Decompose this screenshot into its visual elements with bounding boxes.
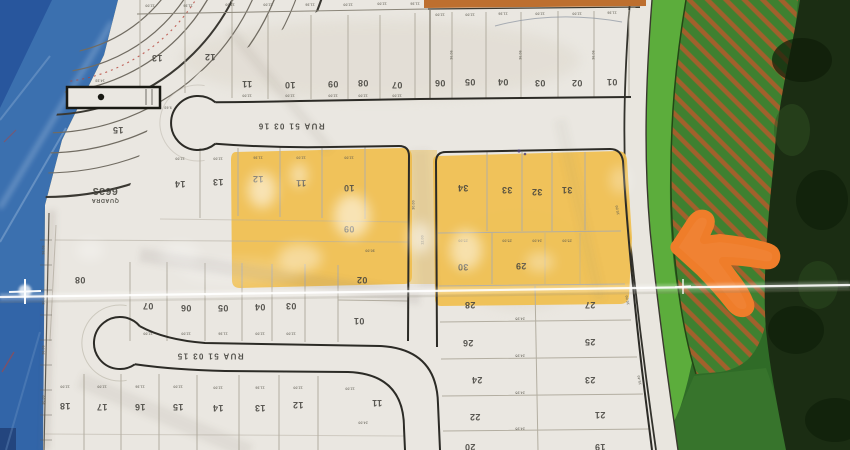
street-name-rua-51-03-15: RUA 51 03 15 <box>176 352 243 361</box>
dimension-label: 12.00 <box>242 93 252 97</box>
lot-number-label: 32 <box>532 187 543 197</box>
lot-number-label: 06 <box>435 78 446 88</box>
dimension-label: 24.00 <box>532 238 542 242</box>
lot-number-label: 23 <box>585 375 596 385</box>
dimension-label: 12.00 <box>392 93 402 97</box>
dimension-label: 12.00 <box>296 155 306 159</box>
dimension-label: 12.00 <box>285 93 295 97</box>
lot-number-label: 08 <box>75 275 86 285</box>
map-labels: RUA 51 03 16 RUA 51 03 15 QUADRA 6633 13… <box>0 0 850 450</box>
dimension-label: 10.00 <box>625 295 630 305</box>
dimension-label: 24.95 <box>515 426 525 430</box>
lot-number-label: 14 <box>213 403 224 413</box>
dimension-label: 30.00 <box>365 248 375 252</box>
lot-number-label: 30 <box>458 262 469 272</box>
lot-number-label: 09 <box>328 79 339 89</box>
lot-number-label: 33 <box>502 185 513 195</box>
lot-number-label: 04 <box>255 302 266 312</box>
dimension-label: 24.95 <box>515 353 525 357</box>
dimension-label: 12.00 <box>263 2 273 6</box>
lot-number-label: 06 <box>181 303 192 313</box>
lot-number-label: 05 <box>218 303 229 313</box>
quadra-title: QUADRA <box>91 197 119 203</box>
dimension-label: 12.00 <box>572 11 582 15</box>
lot-number-label: 26 <box>463 338 474 348</box>
dimension-label: 12.00 <box>175 156 185 160</box>
map-photo: RUA 51 03 16 RUA 51 03 15 QUADRA 6633 13… <box>0 0 850 450</box>
dimension-label: 12.00 <box>535 11 545 15</box>
dimension-label: 24.95 <box>515 316 525 320</box>
dimension-label: 11.36 <box>607 10 616 14</box>
lot-number-label: 25 <box>585 337 596 347</box>
lot-number-label: 10 <box>285 80 296 90</box>
dimension-label: 12.00 <box>421 235 425 245</box>
lot-number-label: 19 <box>595 442 606 450</box>
dimension-label: 25.00 <box>562 238 572 242</box>
dimension-label: 12.00 <box>225 2 235 6</box>
dimension-label: 12.00 <box>143 331 153 335</box>
quadra-number: 6633 <box>92 185 117 197</box>
dimension-label: 11.36 <box>305 2 314 6</box>
dimension-label: 9.63 <box>164 105 171 109</box>
lot-number-label: 17 <box>97 402 108 412</box>
lot-number-label: 08 <box>358 78 369 88</box>
dimension-label: 12.00 <box>213 156 223 160</box>
dimension-label: 12.00 <box>345 386 355 390</box>
dimension-label: 12.00 <box>358 93 368 97</box>
lot-number-label: 16 <box>135 402 146 412</box>
lot-number-label: 24 <box>472 375 483 385</box>
dimension-label: 12.00 <box>344 155 354 159</box>
dimension-label: 12.00 <box>145 3 155 7</box>
lot-number-label: 11 <box>372 398 382 408</box>
lot-number-label: 13 <box>255 403 266 413</box>
lot-number-label: 18 <box>60 401 71 411</box>
dimension-label: 12.00 <box>286 331 296 335</box>
dimension-label: 36.06 <box>450 50 454 60</box>
dimension-label: 12.00 <box>343 2 353 6</box>
lot-number-label: 02 <box>572 78 583 88</box>
dimension-label: 12.00 <box>328 93 338 97</box>
quadra-label: QUADRA 6633 <box>91 185 119 203</box>
lot-number-label: 21 <box>595 410 606 420</box>
dimension-label: 12.00 <box>255 331 265 335</box>
lot-number-label: 03 <box>286 301 297 311</box>
lot-number-label: 22 <box>470 412 481 422</box>
lot-number-label: 11 <box>296 178 306 188</box>
lot-number-label: 02 <box>357 275 368 285</box>
dimension-label: 12.00 <box>97 384 107 388</box>
lot-number-label: 11 <box>242 79 252 89</box>
dimension-label: 15.40 <box>637 375 642 385</box>
lot-number-label: 13 <box>152 53 163 63</box>
dimension-label: 12.00 <box>181 331 191 335</box>
dimension-label: 30.00 <box>42 295 46 305</box>
dimension-label: 10.00 <box>615 205 620 215</box>
street-name-rua-51-03-16: RUA 51 03 16 <box>257 122 324 131</box>
lot-number-label: 07 <box>143 301 154 311</box>
dimension-label: 25.00 <box>502 238 512 242</box>
dimension-label: 11.36 <box>498 11 507 15</box>
dimension-label: 12.00 <box>377 1 387 5</box>
lot-number-label: 12 <box>253 174 264 184</box>
lot-number-label: 12 <box>205 52 216 62</box>
dimension-label: 11.36 <box>255 385 264 389</box>
lot-number-label: 04 <box>498 77 509 87</box>
dimension-label: 12.00 <box>60 384 70 388</box>
lot-number-label: 09 <box>344 224 355 234</box>
lot-number-label: 03 <box>535 78 546 88</box>
dimension-label: 11.36 <box>135 384 144 388</box>
dimension-label: 12.00 <box>465 12 475 16</box>
dimension-label: 36.06 <box>42 245 46 255</box>
dimension-label: 12.00 <box>213 385 223 389</box>
lot-number-label: 28 <box>465 300 476 310</box>
dimension-label: 11.36 <box>183 3 192 7</box>
lot-number-label: 12 <box>293 400 304 410</box>
lot-number-label: 01 <box>354 316 365 326</box>
dimension-label: 12.00 <box>435 12 445 16</box>
dimension-label: 11.36 <box>410 1 419 5</box>
lot-number-label: 13 <box>213 177 224 187</box>
dimension-label: 25.00 <box>458 238 468 242</box>
dimension-label: 30.00 <box>42 395 46 405</box>
dimension-label: 12.00 <box>173 384 183 388</box>
lot-number-label: 15 <box>113 125 124 135</box>
lot-number-label: 29 <box>516 261 527 271</box>
dimension-label: 30.00 <box>412 200 416 210</box>
dimension-label: 11.36 <box>253 155 262 159</box>
dimension-label: 12.00 <box>293 385 303 389</box>
dimension-label: 24.00 <box>358 420 368 424</box>
dimension-label: 36.06 <box>42 345 46 355</box>
dimension-label: 36.06 <box>592 50 596 60</box>
lot-number-label: 31 <box>562 185 573 195</box>
lot-number-label: 20 <box>465 442 476 450</box>
lot-number-label: 15 <box>173 402 184 412</box>
dimension-label: 14.33 <box>95 78 105 82</box>
lot-number-label: 10 <box>344 183 355 193</box>
dimension-label: 36.06 <box>519 50 523 60</box>
lot-number-label: 34 <box>458 183 469 193</box>
dimension-label: 24.95 <box>515 390 525 394</box>
lot-number-label: 05 <box>465 77 476 87</box>
dimension-label: 11.36 <box>218 331 227 335</box>
lot-number-label: 01 <box>607 77 618 87</box>
lot-number-label: 07 <box>392 80 403 90</box>
lot-number-label: 27 <box>585 300 596 310</box>
lot-number-label: 14 <box>175 179 186 189</box>
